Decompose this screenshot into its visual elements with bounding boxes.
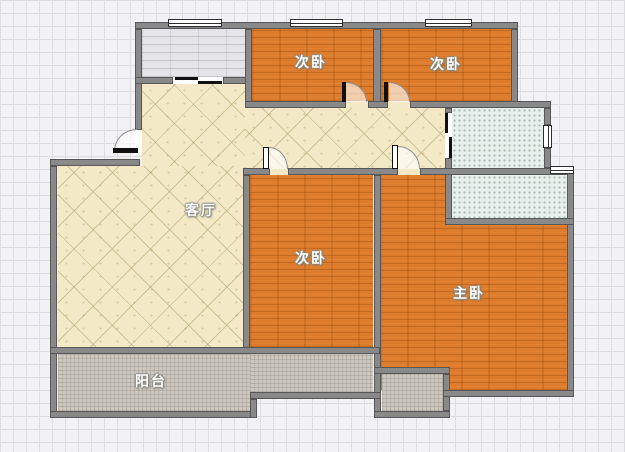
wall-segment [250, 392, 381, 399]
wall-segment [368, 101, 388, 108]
wall-segment [243, 168, 270, 175]
window[interactable] [425, 19, 472, 27]
window[interactable] [543, 125, 552, 148]
wall-segment [135, 77, 173, 84]
wall-segment [445, 218, 574, 225]
window[interactable] [168, 19, 222, 27]
wall-segment [374, 175, 381, 418]
wall-segment [50, 166, 57, 418]
wall-segment [443, 390, 574, 397]
door-opening [346, 101, 368, 108]
floorplan-canvas: 客厅 次卧 次卧 次卧 主卧 阳台 [0, 0, 625, 452]
sliding-panel [449, 137, 452, 158]
room-small-balcony[interactable] [382, 374, 443, 411]
wall-segment [245, 29, 252, 108]
wall-segment [511, 29, 518, 108]
room-label-balcony: 阳台 [135, 371, 167, 391]
wall-segment [374, 411, 450, 418]
wall-segment [544, 108, 551, 125]
wall-segment [288, 168, 398, 175]
window[interactable] [550, 166, 574, 174]
wall-segment [544, 148, 551, 168]
entry-door-leaf[interactable] [113, 148, 138, 153]
sliding-panel [445, 113, 448, 133]
wall-segment [50, 159, 140, 166]
door-opening [398, 168, 420, 175]
room-label-bedroom-top-right: 次卧 [430, 54, 462, 74]
door-leaf[interactable] [263, 147, 269, 169]
door-opening [388, 101, 410, 108]
wall-segment [243, 175, 250, 354]
window[interactable] [290, 19, 343, 27]
door-opening [270, 168, 288, 175]
wall-segment [567, 168, 574, 397]
door-leaf[interactable] [342, 82, 346, 102]
wall-segment [250, 399, 257, 418]
room-entry-porch[interactable] [142, 28, 245, 77]
wall-segment [245, 101, 346, 108]
door-leaf[interactable] [384, 82, 388, 102]
room-label-bedroom-top-left: 次卧 [295, 52, 327, 72]
room-label-living-room: 客厅 [185, 200, 217, 220]
sliding-panel [175, 77, 198, 80]
room-balcony-shallow[interactable] [250, 354, 373, 392]
wall-segment [410, 101, 551, 108]
room-label-bedroom-bottom: 次卧 [295, 248, 327, 268]
room-living-room[interactable] [58, 166, 243, 348]
room-label-master-bedroom: 主卧 [453, 283, 485, 303]
wall-segment [50, 347, 380, 354]
room-living-room-upper[interactable] [142, 84, 245, 168]
room-bath-upper[interactable] [452, 108, 544, 168]
room-bath-lower[interactable] [452, 175, 567, 218]
wall-segment [50, 411, 257, 418]
door-leaf[interactable] [392, 145, 398, 169]
sliding-panel [198, 81, 222, 84]
wall-segment [374, 367, 450, 374]
wall-segment [373, 29, 381, 108]
